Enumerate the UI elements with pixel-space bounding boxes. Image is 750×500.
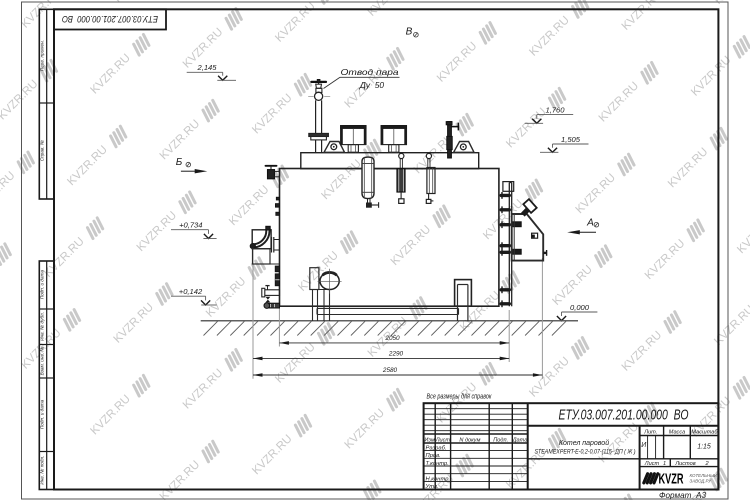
svg-text:0,000: 0,000	[570, 303, 590, 312]
svg-text:KVZR.RU: KVZR.RU	[88, 51, 133, 96]
svg-text:KVZR.RU: KVZR.RU	[712, 0, 750, 7]
svg-text:KVZR.RU: KVZR.RU	[342, 406, 387, 451]
svg-text:Дата: Дата	[512, 437, 528, 443]
svg-text:Отвод пара: Отвод пара	[341, 67, 399, 77]
svg-text:KVZR.RU: KVZR.RU	[688, 53, 733, 98]
svg-text:KVZR.RU: KVZR.RU	[250, 91, 295, 136]
svg-text:KVZR.RU: KVZR.RU	[65, 143, 110, 188]
svg-text:Все размеры для справок: Все размеры для справок	[427, 392, 493, 400]
svg-text:Ду 50: Ду 50	[359, 80, 384, 90]
svg-text:N докум: N докум	[459, 437, 480, 443]
svg-text:Изм: Изм	[424, 437, 435, 443]
svg-text:Справ. №: Справ. №	[40, 140, 45, 161]
svg-text:KVZR.RU: KVZR.RU	[180, 366, 225, 411]
svg-text:Перв. примен.: Перв. примен.	[40, 40, 45, 71]
svg-text:Взам. инв. №: Взам. инв. №	[40, 346, 45, 375]
svg-text:Инв. № подл.: Инв. № подл.	[40, 456, 45, 485]
svg-text:KVZR.RU: KVZR.RU	[550, 263, 595, 308]
svg-text:KVZR.RU: KVZR.RU	[157, 458, 202, 500]
svg-text:Лит.: Лит.	[643, 430, 657, 436]
svg-text:ЗАВОД.РУ: ЗАВОД.РУ	[690, 479, 713, 484]
svg-text:KVZR.RU: KVZR.RU	[642, 237, 687, 282]
svg-text:+0,142: +0,142	[179, 287, 203, 296]
svg-text:Котел паровой: Котел паровой	[559, 439, 609, 447]
svg-text:Формат А3: Формат А3	[659, 491, 706, 500]
svg-text:1,505: 1,505	[561, 135, 581, 144]
svg-text:KVZR.RU: KVZR.RU	[250, 432, 295, 477]
svg-text:KVZR.RU: KVZR.RU	[735, 211, 750, 256]
svg-text:KVZR.RU: KVZR.RU	[527, 14, 572, 59]
svg-text:Разраб.: Разраб.	[426, 446, 447, 452]
svg-text:KVZR.RU: KVZR.RU	[712, 303, 750, 348]
svg-text:Масштаб: Масштаб	[691, 430, 718, 436]
svg-text:Н.контр.: Н.контр.	[426, 477, 451, 483]
svg-text:KVZR.RU: KVZR.RU	[619, 0, 664, 33]
svg-text:KVZR.RU: KVZR.RU	[19, 0, 64, 31]
svg-text:KVZR.RU: KVZR.RU	[573, 171, 618, 216]
svg-text:KVZR.RU: KVZR.RU	[481, 197, 526, 242]
svg-text:KVZR.RU: KVZR.RU	[203, 275, 248, 320]
svg-text:2,145: 2,145	[196, 63, 217, 72]
svg-text:KVZR.RU: KVZR.RU	[273, 0, 318, 45]
svg-text:KVZR.RU: KVZR.RU	[388, 223, 433, 268]
svg-text:KVZR.RU: KVZR.RU	[0, 169, 17, 214]
svg-text:ЕТУ.03.007.201.00.000 ВО: ЕТУ.03.007.201.00.000 ВО	[559, 407, 689, 424]
svg-text:KVZR.RU: KVZR.RU	[88, 392, 133, 437]
svg-text:KVZR.RU: KVZR.RU	[596, 79, 641, 124]
svg-text:KVZR.RU: KVZR.RU	[226, 183, 271, 228]
svg-text:Масса: Масса	[669, 430, 686, 436]
svg-text:Подп.: Подп.	[493, 437, 508, 443]
svg-text:KVZR.RU: KVZR.RU	[111, 301, 156, 346]
svg-text:Утв.: Утв.	[425, 484, 439, 490]
svg-text:А: А	[586, 218, 594, 229]
svg-text:Инв. № дубл.: Инв. № дубл.	[40, 312, 45, 341]
svg-text:2290: 2290	[388, 350, 404, 357]
svg-text:Подп. и дата: Подп. и дата	[40, 270, 45, 300]
svg-text:KVZR.RU: KVZR.RU	[665, 145, 710, 190]
svg-text:Пров.: Пров.	[426, 453, 441, 459]
svg-text:Лист: Лист	[435, 437, 451, 443]
svg-text:KVZR.RU: KVZR.RU	[319, 157, 364, 202]
svg-text:KVZR.RU: KVZR.RU	[157, 117, 202, 162]
svg-text:Т.контр.: Т.контр.	[426, 461, 449, 467]
svg-text:ЕТУ.03.007.201.00.000 ВО: ЕТУ.03.007.201.00.000 ВО	[62, 14, 158, 24]
svg-text:2580: 2580	[382, 367, 398, 374]
svg-text:KVZR.RU: KVZR.RU	[619, 329, 664, 374]
svg-text:KVZR.RU: KVZR.RU	[504, 105, 549, 150]
svg-text:Б: Б	[176, 157, 183, 168]
svg-text:KVZR.RU: KVZR.RU	[527, 354, 572, 399]
svg-text:+0,734: +0,734	[179, 221, 202, 230]
svg-text:Подп. и дата: Подп. и дата	[40, 399, 45, 429]
svg-text:В: В	[406, 27, 413, 38]
svg-text:KVZR.RU: KVZR.RU	[134, 209, 179, 254]
svg-text:И: И	[641, 442, 647, 449]
svg-text:KVZR.RU: KVZR.RU	[273, 340, 318, 385]
svg-text:Листов: Листов	[674, 461, 695, 467]
svg-text:KVZR: KVZR	[659, 471, 684, 488]
svg-text:KVZR.RU: KVZR.RU	[42, 235, 87, 280]
svg-text:КОТЕЛЬНЫЙ: КОТЕЛЬНЫЙ	[690, 473, 718, 478]
svg-text:Лист: Лист	[644, 461, 660, 467]
svg-text:STEAMEXPERT-Е-0,2-0,07-(115- Д: STEAMEXPERT-Е-0,2-0,07-(115- ДП ( Ж )	[535, 449, 636, 456]
svg-text:1:15: 1:15	[697, 444, 711, 451]
svg-text:KVZR.RU: KVZR.RU	[434, 39, 479, 84]
svg-text:1: 1	[663, 461, 666, 467]
svg-text:1,760: 1,760	[545, 106, 565, 115]
svg-text:KVZR.RU: KVZR.RU	[0, 77, 41, 122]
svg-text:2050: 2050	[384, 335, 400, 342]
